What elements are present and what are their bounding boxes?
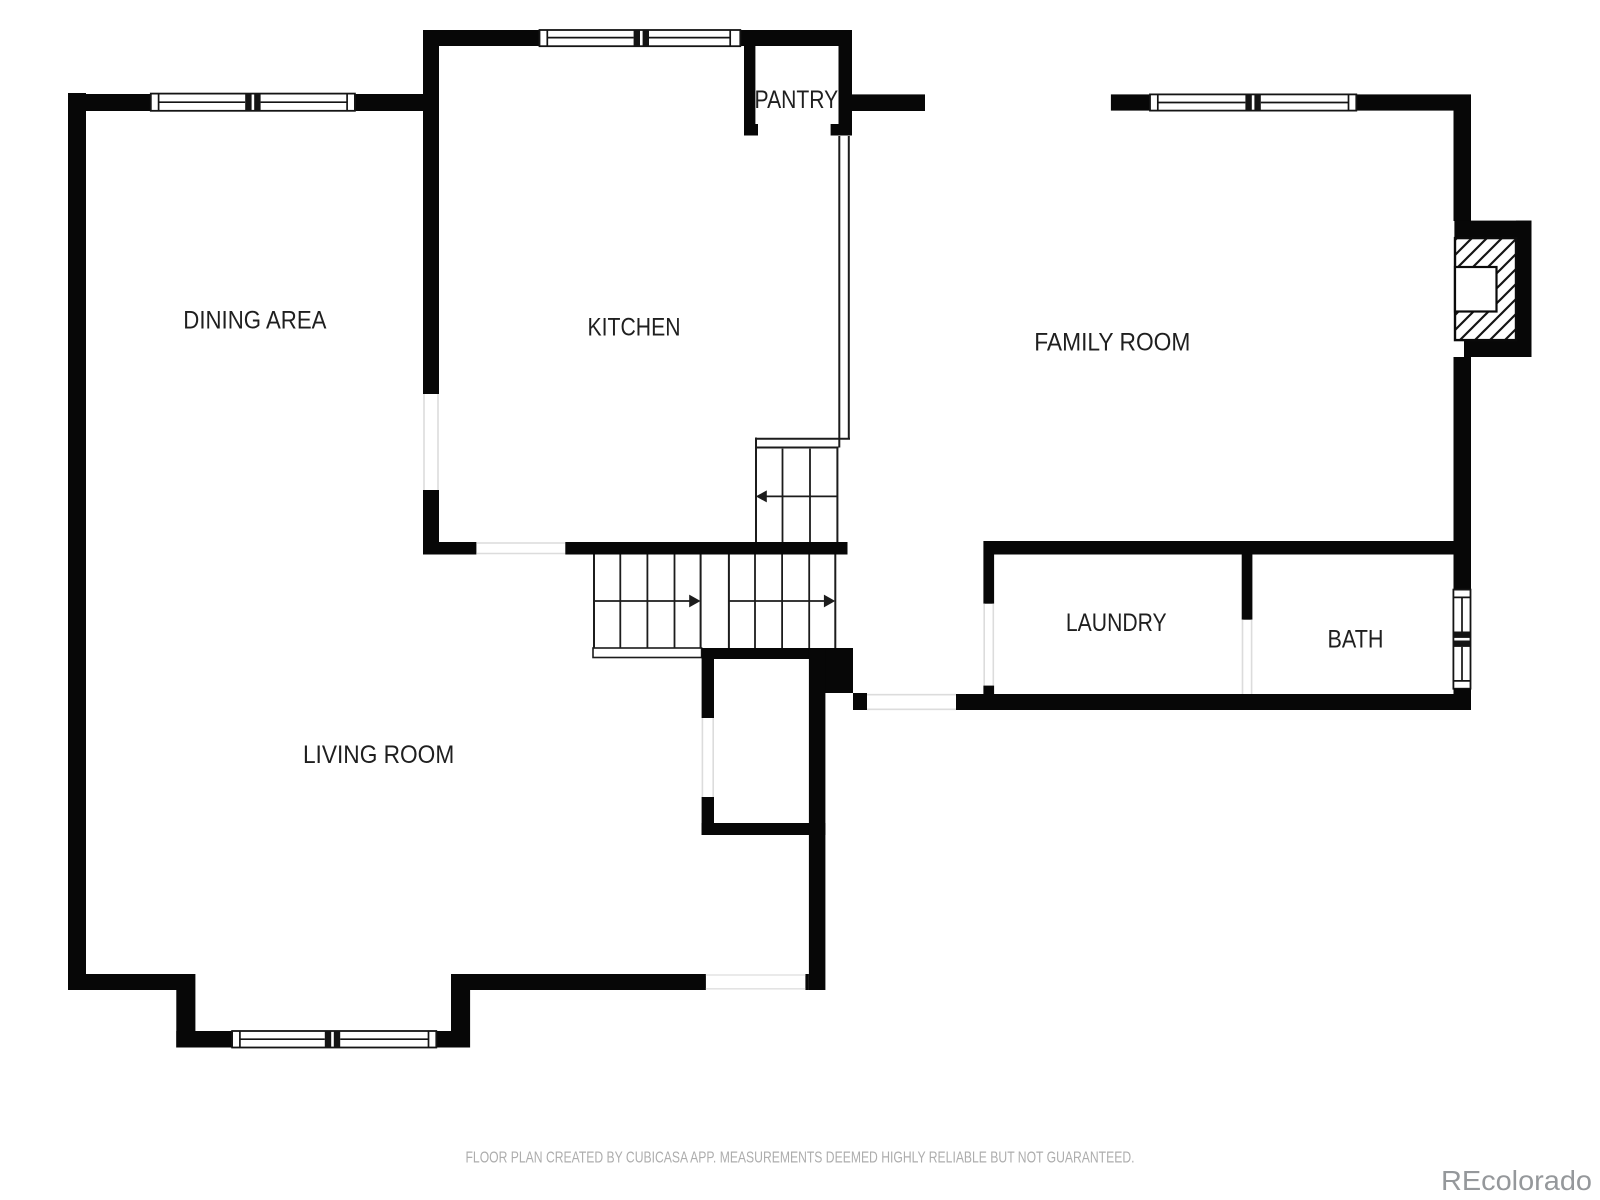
svg-text:FLOOR PLAN CREATED BY CUBICASA: FLOOR PLAN CREATED BY CUBICASA APP. MEAS… (466, 1150, 1135, 1167)
svg-text:BATH: BATH (1328, 625, 1384, 653)
svg-text:KITCHEN: KITCHEN (588, 314, 681, 342)
svg-text:REcolorado: REcolorado (1441, 1165, 1592, 1196)
svg-text:FAMILY ROOM: FAMILY ROOM (1034, 328, 1190, 356)
svg-text:DINING AREA: DINING AREA (183, 307, 326, 335)
svg-text:PANTRY: PANTRY (755, 86, 839, 114)
svg-text:LAUNDRY: LAUNDRY (1066, 609, 1167, 637)
svg-text:LIVING ROOM: LIVING ROOM (303, 741, 454, 769)
